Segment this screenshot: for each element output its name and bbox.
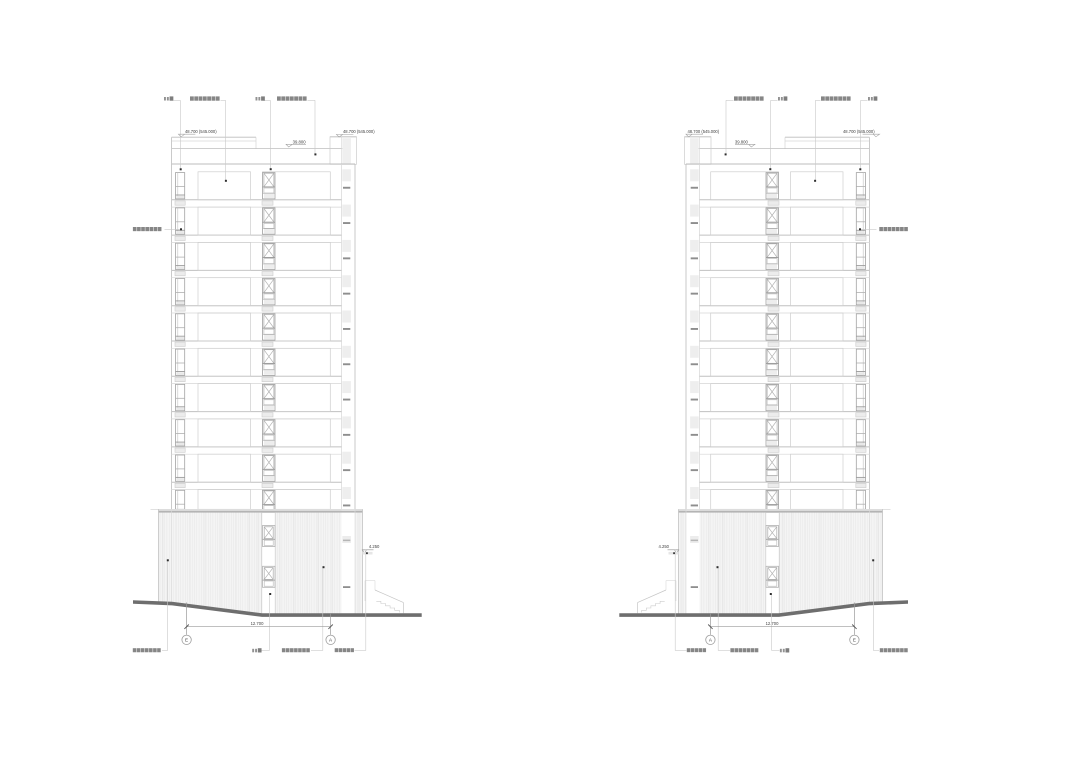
svg-text:48.700 (545.000): 48.700 (545.000) [185, 129, 217, 134]
svg-text:4.250: 4.250 [659, 544, 670, 549]
svg-text:48.700 (545.000): 48.700 (545.000) [343, 129, 375, 134]
svg-text:48.700 (545.000): 48.700 (545.000) [688, 129, 720, 134]
svg-text:4.250: 4.250 [369, 544, 380, 549]
svg-text:E: E [185, 637, 188, 642]
svg-text:12.700: 12.700 [766, 621, 779, 626]
svg-text:39.800: 39.800 [293, 140, 307, 145]
svg-text:12.700: 12.700 [251, 621, 264, 626]
svg-text:E: E [853, 637, 856, 642]
svg-text:48.700 (545.000): 48.700 (545.000) [843, 129, 875, 134]
svg-text:39.800: 39.800 [735, 140, 749, 145]
